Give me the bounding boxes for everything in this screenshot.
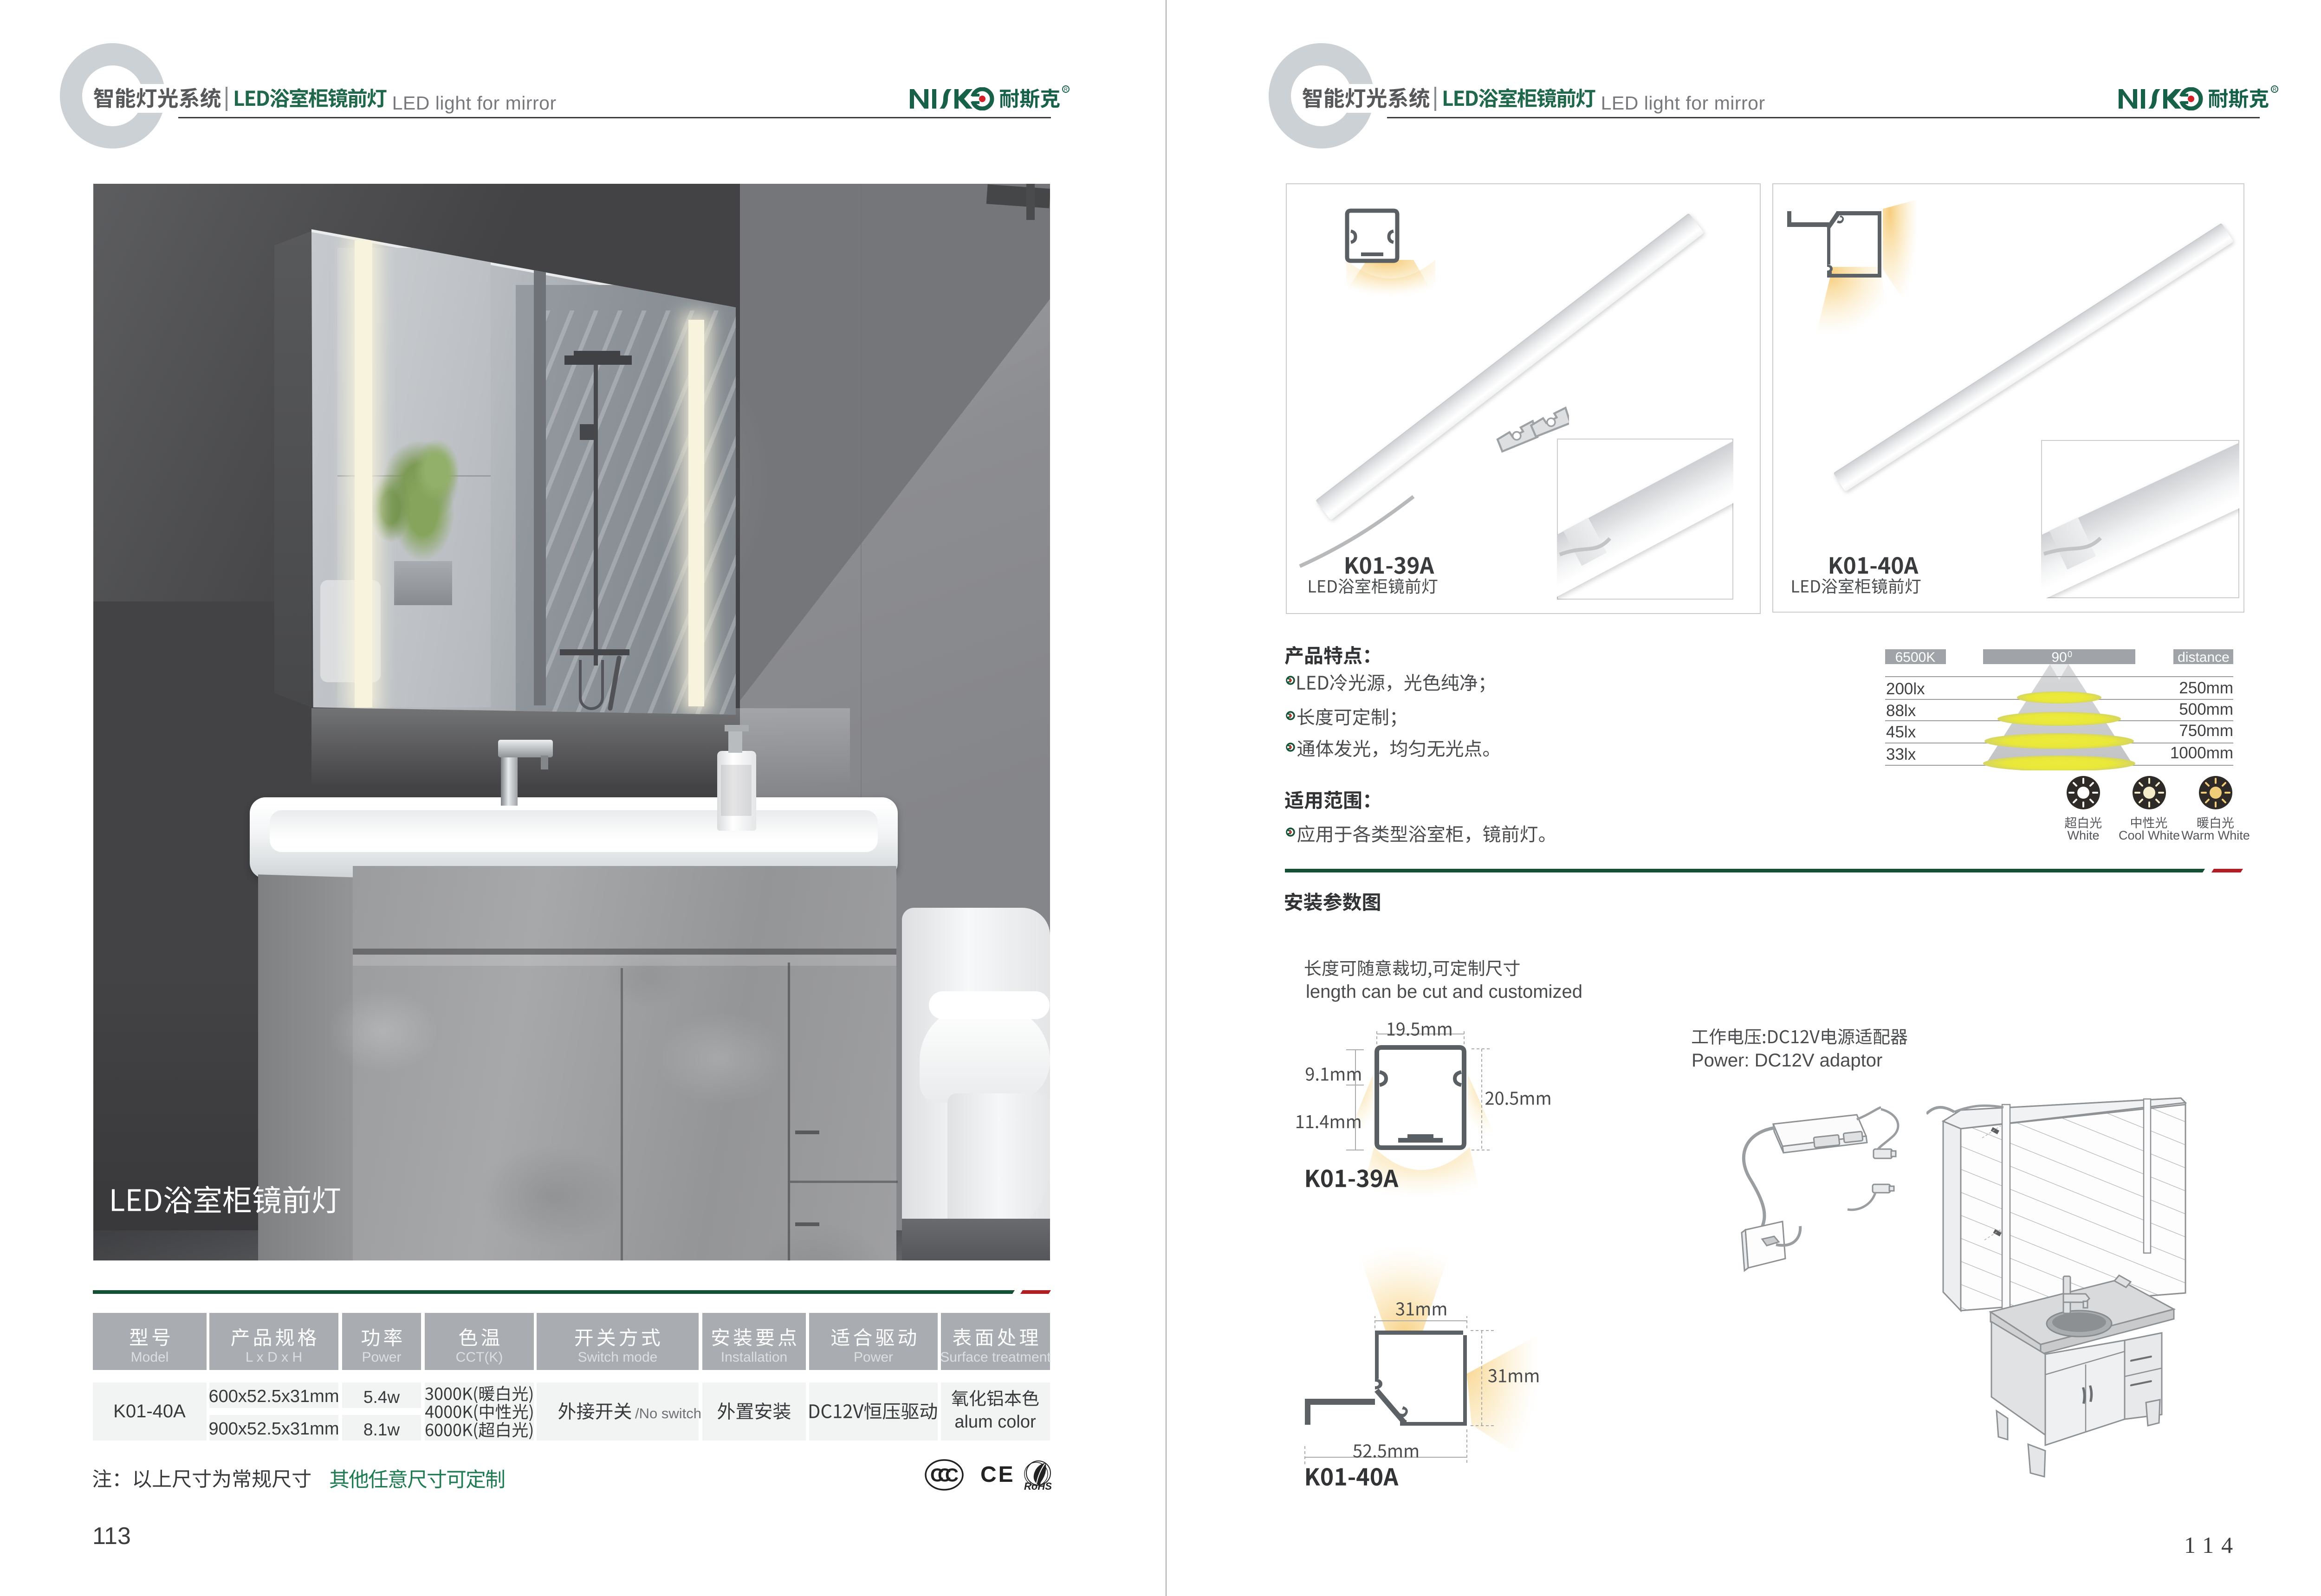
svg-text:0: 0 (2068, 650, 2072, 659)
svg-text:88lx: 88lx (1886, 702, 1916, 720)
svg-text:6500K: 6500K (1895, 650, 1936, 665)
svg-text:250mm: 250mm (2179, 679, 2233, 697)
svg-text:C: C (945, 1465, 959, 1486)
svg-text:distance: distance (2178, 650, 2230, 665)
svg-text:RoHS: RoHS (1024, 1480, 1052, 1492)
svg-text:500mm: 500mm (2179, 700, 2233, 718)
svg-text:45lx: 45lx (1886, 723, 1916, 741)
svg-text:750mm: 750mm (2179, 722, 2233, 740)
svg-text:CE: CE (980, 1462, 1015, 1487)
svg-text:90: 90 (2051, 650, 2067, 665)
svg-text:33lx: 33lx (1886, 745, 1916, 763)
svg-text:200lx: 200lx (1886, 680, 1925, 698)
svg-text:1000mm: 1000mm (2170, 744, 2233, 762)
